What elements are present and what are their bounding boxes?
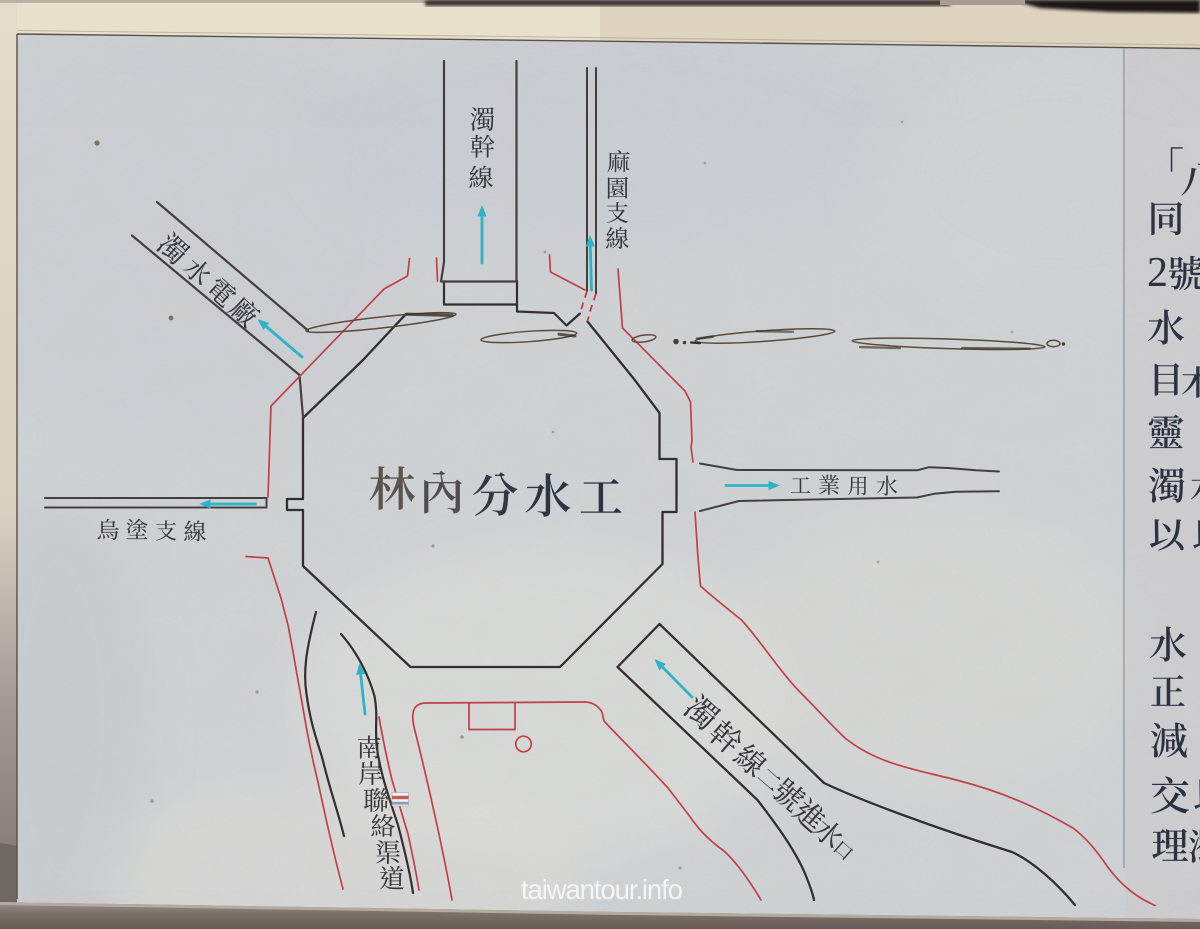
- svg-text:taiwantour.info: taiwantour.info: [521, 874, 683, 905]
- svg-text:2: 2: [1147, 250, 1168, 296]
